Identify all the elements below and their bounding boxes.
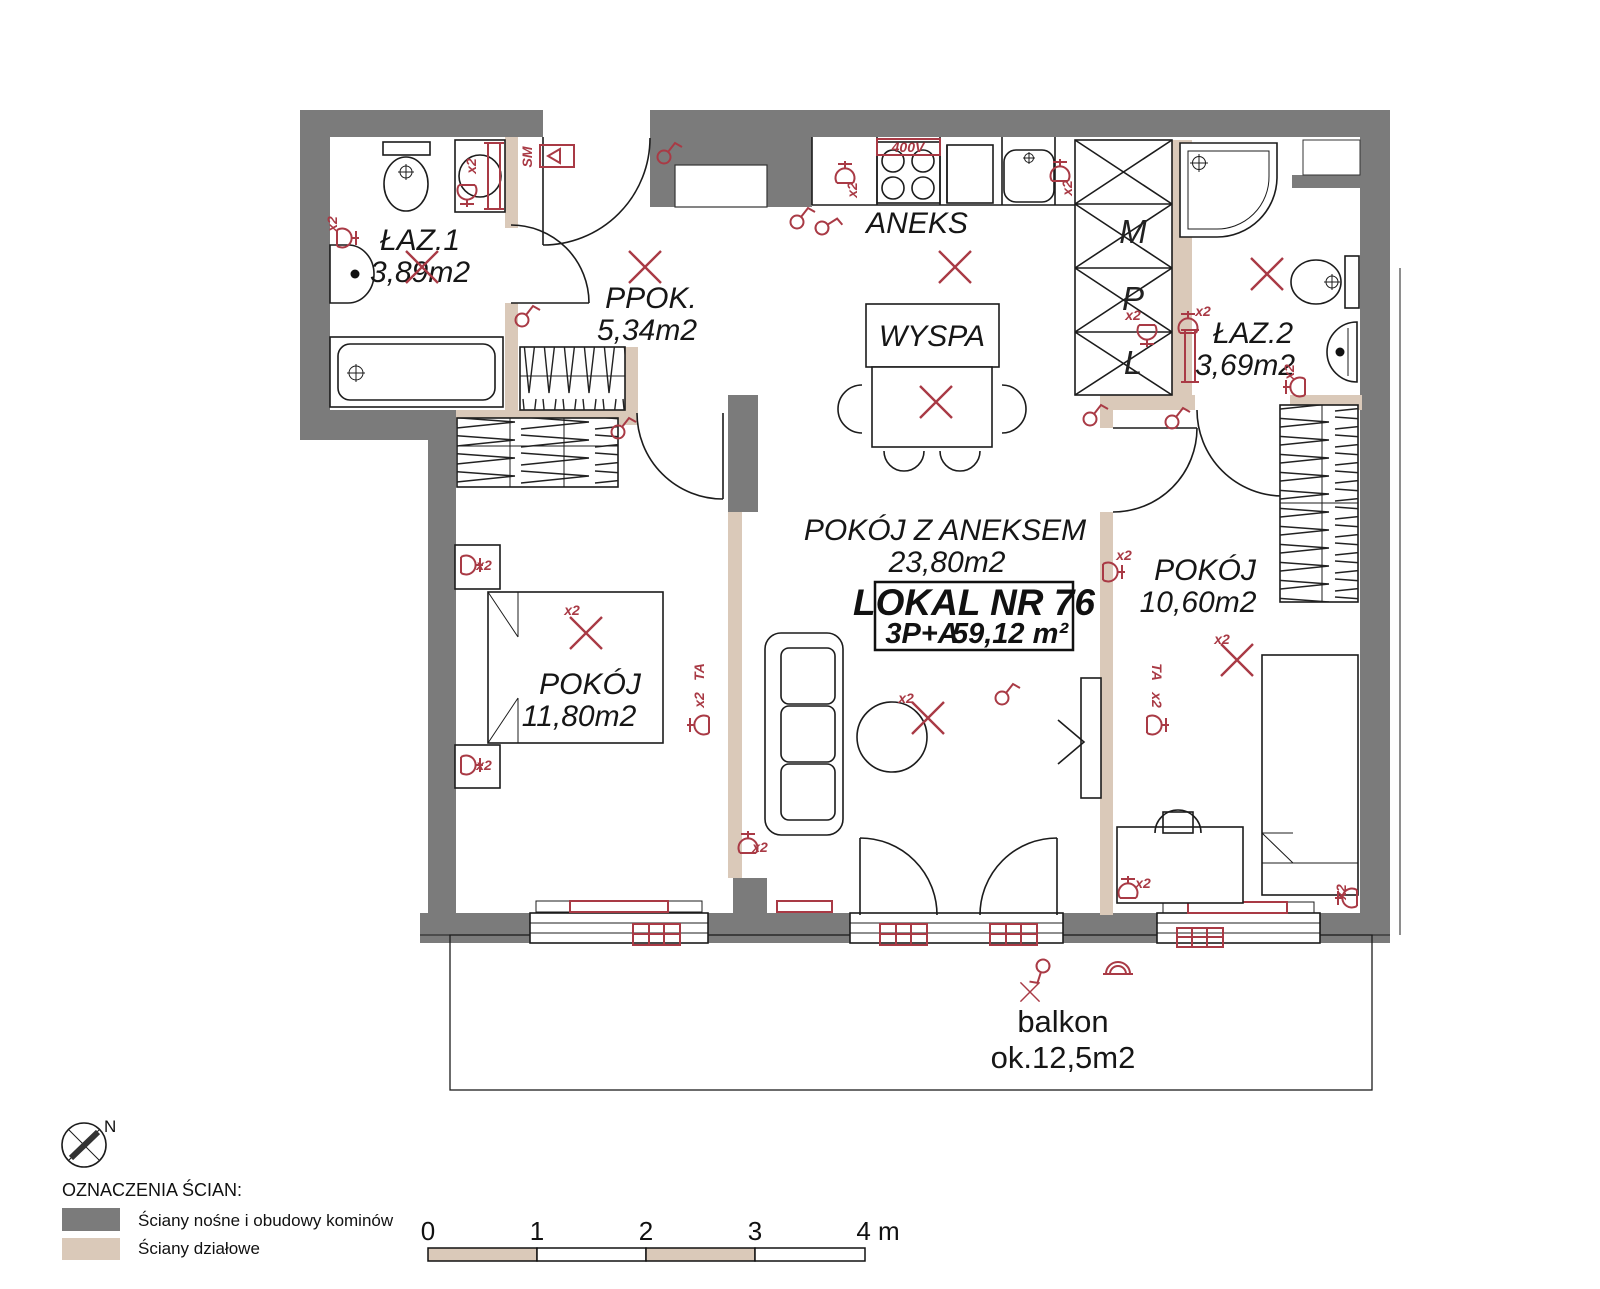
balcony: balkon ok.12,5m2 [991,1004,1136,1075]
shower-icon [1180,143,1277,237]
ceiling-lamp-icon [939,251,971,283]
x2-label: x2 [324,216,340,233]
room-area-bedroom-right: 10,60m2 [1140,586,1257,619]
basin-faucet [351,270,360,279]
socket-icon [458,185,477,207]
x2-label: x2 [1194,303,1211,319]
corner-niche [1303,140,1360,175]
window-bedroom-left [530,901,708,945]
bedroom-right-door [1113,428,1197,512]
floor-plan-drawing: M P L ŁAZ.1 3,89m2 PPOK. 5,34m2 [0,0,1600,1289]
x2-label: x2 [1213,631,1230,647]
ceiling-lamp-icon [629,251,661,283]
round-table-icon [857,702,927,772]
switch-icon [814,213,844,241]
hall: PPOK. 5,34m2 [457,282,697,487]
unit-label-box: LOKAL NR 76 3P+A 59,12 m² [853,582,1095,650]
living-room: POKÓJ Z ANEKSEM 23,80m2 [765,514,1101,835]
island-label: WYSPA [879,320,985,353]
x2-label: x2 [1333,884,1349,901]
x2-label: x2 [897,690,914,706]
room-area-bedroom-left: 11,80m2 [522,700,637,733]
scale-tick-0: 0 [421,1216,435,1246]
legend-title: OZNACZENIA ŚCIAN: [62,1179,242,1200]
x2-label: x2 [1124,307,1141,323]
scale-tick-3: 3 [748,1216,762,1246]
unit-number: LOKAL NR 76 [853,582,1095,623]
legend-swatch-load-bearing [62,1208,120,1231]
room-name-laz2: ŁAZ.2 [1213,317,1293,350]
room-name-aneks: ANEKS [864,207,968,240]
shaft-letter-l: L [1124,344,1142,381]
switch-icon [1166,408,1191,429]
kitchen-cabinet [947,145,993,203]
scale-tick-1: 1 [530,1216,544,1246]
sm-label: SM [519,146,535,167]
bedroom-left-door [637,413,723,499]
sofa-icon [765,633,843,835]
chair-icon [884,451,924,471]
x2-label: x2 [844,182,860,199]
chair-icon [1002,385,1026,433]
tv-cabinet [1081,678,1101,798]
room-name-living: POKÓJ Z ANEKSEM [804,514,1086,547]
socket-icon [687,716,709,735]
balcony-name: balkon [1017,1004,1108,1039]
window-bedroom-right [1157,902,1320,947]
ceiling-lamp-icon [912,702,944,734]
north-label: N [104,1117,116,1136]
x2-label: x2 [1149,691,1165,708]
switch-icon [516,306,541,327]
x2-label: x2 [463,158,479,175]
installation-shaft: M P L [1075,140,1172,395]
bedroom-right: POKÓJ 10,60m2 [1117,405,1358,903]
north-compass: N [62,1117,116,1167]
balcony-wall-lamp-icon [1103,962,1133,974]
x2-label: x2 [563,602,580,618]
x2-label: x2 [475,557,492,573]
x2-label: x2 [1115,547,1132,563]
room-area-ppok: 5,34m2 [597,314,697,347]
legend-label-load-bearing: Ściany nośne i obudowy kominów [138,1211,394,1230]
ta-label: TA [1149,663,1165,681]
x2-label: x2 [751,839,768,855]
desk-icon [1117,827,1243,903]
socket-icon [1147,716,1169,735]
toilet-tank [1345,256,1359,308]
unit-layout: 3P+A [885,618,958,650]
bedroom-left: POKÓJ 11,80m2 [455,545,663,788]
wall-legend: OZNACZENIA ŚCIAN: Ściany nośne i obudowy… [62,1179,394,1260]
room-name-laz1: ŁAZ.1 [380,224,460,257]
unit-total-area: 59,12 m² [952,618,1069,650]
legend-label-partition: Ściany działowe [138,1239,260,1258]
toilet-tank [383,142,430,155]
x2-label: x2 [475,757,492,773]
scale-bar: 0 1 2 3 4 m [421,1216,900,1261]
bathroom1-door [511,225,589,303]
scale-end-label: 4 m [856,1216,899,1246]
balcony-area: ok.12,5m2 [991,1040,1136,1075]
bathroom2-door [1197,410,1283,496]
x2-label: x2 [1134,875,1151,891]
washbasin-counter [455,140,505,212]
x2-label: x2 [1281,364,1297,381]
switch-icon [996,684,1021,705]
doorbell-annotation: SM [519,145,574,168]
balcony-switch-icon [1024,958,1054,986]
x2-label: x2 [1059,180,1075,197]
room-name-ppok: PPOK. [605,282,697,315]
bed-icon [1262,655,1358,895]
shaft-letter-m: M [1119,213,1147,250]
balcony-lamp-icon [1020,982,1039,1001]
switch-icon [791,208,816,229]
scale-tick-2: 2 [639,1216,653,1246]
chair-icon [940,451,980,471]
tv-icon [1058,720,1084,764]
chair-icon [838,385,862,433]
x2-label: x2 [691,692,707,709]
room-name-bedroom-right: POKÓJ [1154,554,1257,587]
room-area-living: 23,80m2 [888,546,1006,579]
ta-label: TA [691,663,707,681]
floor-plan-page: M P L ŁAZ.1 3,89m2 PPOK. 5,34m2 [0,0,1600,1289]
ceiling-lamp-icon [1251,258,1283,290]
room-area-laz1: 3,89m2 [370,256,470,289]
bathroom1: ŁAZ.1 3,89m2 [330,140,505,407]
ceiling-lamp-icon [1221,644,1253,676]
legend-swatch-partition [62,1238,120,1260]
power-label: 400V [891,139,926,155]
room-name-bedroom-left: POKÓJ [539,668,642,701]
socket-icon [836,161,855,183]
entrance-niche [675,165,767,207]
